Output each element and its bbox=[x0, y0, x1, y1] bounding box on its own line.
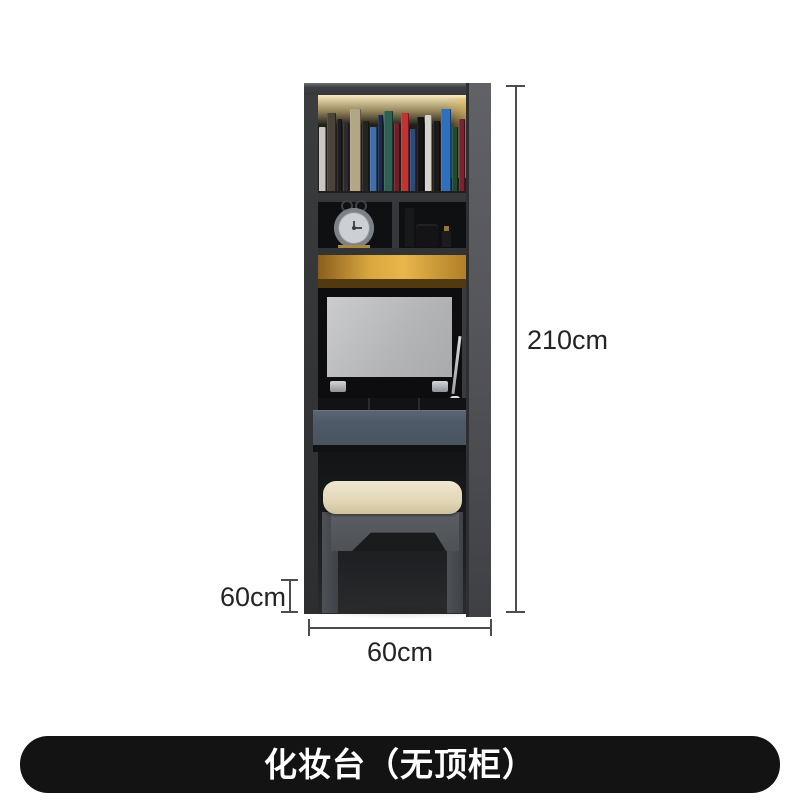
book-spine bbox=[362, 121, 369, 191]
book-spine bbox=[417, 117, 424, 191]
width-dimension-line bbox=[308, 627, 492, 629]
book-spine bbox=[410, 129, 416, 191]
width-dimension-label: 60cm bbox=[355, 639, 445, 666]
makeup-tray bbox=[318, 398, 466, 410]
height-dimension-label: 210cm bbox=[527, 327, 608, 354]
cabinet-top-board bbox=[304, 83, 491, 95]
book-spine bbox=[350, 109, 361, 191]
shelf-board bbox=[318, 193, 466, 202]
tray-divider bbox=[418, 398, 420, 410]
book-spine bbox=[459, 119, 465, 191]
product-image: 210cm 60cm 60cm 化妆台（无顶柜） bbox=[0, 0, 800, 800]
cabinet-right-panel bbox=[466, 83, 491, 617]
dimension-line-cap bbox=[506, 85, 525, 87]
drawer-front bbox=[313, 410, 486, 445]
led-band-shadow bbox=[318, 279, 466, 288]
drawer-shadow bbox=[313, 445, 486, 452]
book-spine bbox=[452, 127, 458, 191]
cabinet-left-panel bbox=[304, 95, 318, 614]
dimension-line-cap bbox=[308, 619, 310, 636]
caption-text: 化妆台（无顶柜） bbox=[20, 736, 780, 793]
dimension-line-cap bbox=[506, 611, 525, 613]
height-dimension-line bbox=[515, 86, 517, 612]
flip-up-mirror bbox=[327, 297, 452, 377]
stool-height-dimension-label: 60cm bbox=[220, 584, 284, 611]
mirror-hinge-icon bbox=[432, 381, 448, 392]
clock-hub bbox=[352, 226, 356, 230]
dimension-line-cap bbox=[490, 619, 492, 636]
led-light-band bbox=[318, 255, 466, 279]
book-spine bbox=[401, 113, 409, 191]
book-spine bbox=[384, 111, 393, 191]
tray-divider bbox=[368, 398, 370, 410]
book-spine bbox=[425, 115, 432, 191]
book-spine bbox=[337, 119, 342, 191]
cosmetic-jar-icon bbox=[416, 224, 438, 247]
book-spine bbox=[394, 123, 400, 191]
mirror-hinge-icon bbox=[330, 381, 346, 392]
stool-cushion bbox=[323, 481, 462, 514]
book-spine bbox=[319, 127, 326, 191]
book-spine bbox=[441, 109, 451, 191]
books-row bbox=[319, 107, 465, 191]
stool-height-dimension-line bbox=[289, 579, 291, 613]
dimension-line-cap bbox=[281, 579, 298, 581]
small-bottle-icon bbox=[442, 231, 451, 247]
book-spine bbox=[343, 123, 349, 191]
book-spine bbox=[378, 115, 383, 191]
shelf-board bbox=[318, 248, 466, 255]
compartment-divider bbox=[392, 202, 399, 248]
book-spine bbox=[370, 127, 377, 191]
book-spine bbox=[433, 121, 440, 191]
perfume-bottle-icon bbox=[405, 208, 414, 247]
small-bottle-cap bbox=[444, 226, 449, 231]
book-spine bbox=[327, 113, 336, 191]
